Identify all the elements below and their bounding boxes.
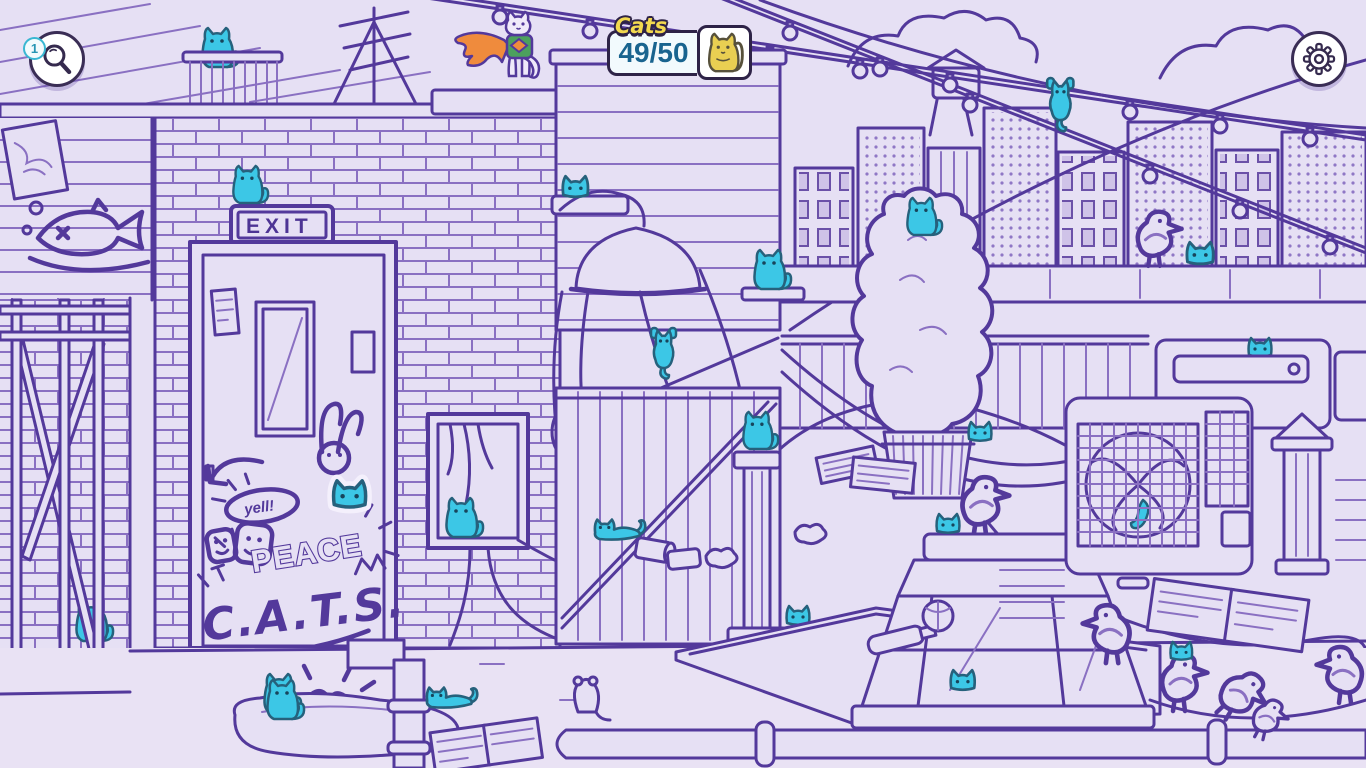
game-screen: EXIT yell! (0, 0, 1366, 768)
svg-text:EXIT: EXIT (246, 215, 313, 238)
hidden-cat[interactable] (334, 481, 366, 507)
exit-door: yell! PEACE C.A.T.S. (190, 242, 410, 661)
left-plank-wall (0, 118, 155, 300)
cat-counter: Cats 49/50 (607, 12, 752, 80)
hint-count-badge: 1 (23, 37, 46, 60)
exit-sign: EXIT (231, 206, 333, 244)
settings-button[interactable] (1291, 31, 1347, 87)
scaffolding (0, 298, 130, 694)
counter-cat-tile (697, 25, 752, 80)
hint-button[interactable]: 1 (29, 31, 85, 87)
counter-label: Cats (615, 14, 667, 38)
gear-icon (1300, 39, 1338, 79)
scene-illustration: EXIT yell! (0, 0, 1366, 768)
yellow-cat-icon (704, 30, 746, 76)
